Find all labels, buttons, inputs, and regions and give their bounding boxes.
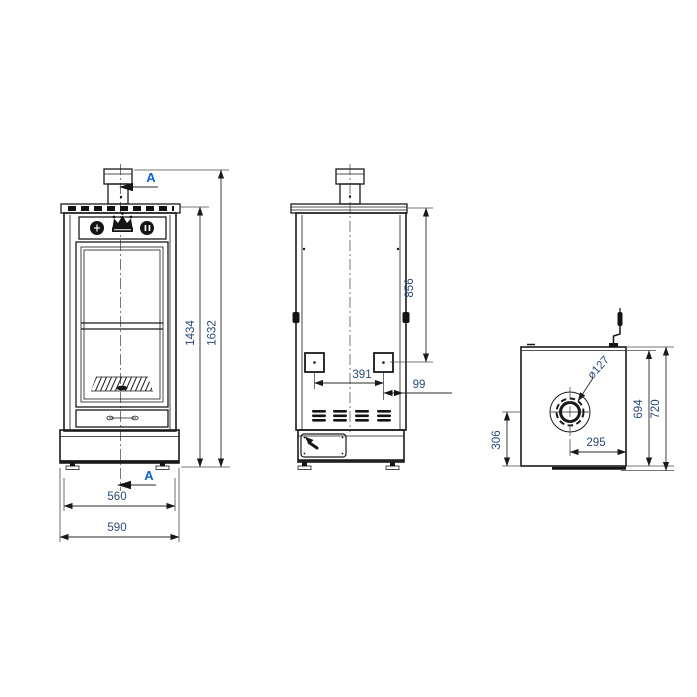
top-dimensions: ø127 295 306 694 720 [491, 347, 674, 471]
side-clip-right [403, 312, 410, 323]
right-knob-icon [140, 221, 154, 235]
dim-391: 391 [352, 369, 371, 381]
dim-694: 694 [633, 399, 645, 419]
section-label-top: A [146, 170, 156, 185]
side-foot-left [298, 463, 311, 470]
dim-height-1434: 1434 [185, 320, 197, 346]
side-view: 856 391 99 [291, 164, 452, 470]
air-port-right [374, 353, 393, 372]
flue-opening [550, 387, 590, 456]
side-base [298, 430, 404, 470]
grate-icon [90, 376, 157, 392]
dim-720: 720 [650, 399, 662, 418]
air-port-left [305, 353, 324, 372]
top-view: ø127 295 306 694 720 [491, 308, 674, 471]
side-foot-right [386, 463, 399, 470]
dim-height-1632: 1632 [207, 320, 219, 346]
dim-width-590: 590 [107, 522, 126, 534]
dim-306: 306 [491, 430, 503, 449]
front-door-window [76, 242, 168, 407]
dim-width-560: 560 [107, 491, 126, 503]
dim-99: 99 [413, 379, 426, 391]
side-base-panel [301, 434, 346, 457]
stove-dimension-drawing: A A 1434 1632 560 590 [0, 0, 697, 697]
section-marker-bottom: A [117, 468, 156, 489]
damper-lever-icon [609, 308, 623, 347]
front-ash-drawer [76, 410, 168, 427]
dim-856: 856 [404, 278, 416, 297]
technical-drawing-page: A A 1434 1632 560 590 [0, 0, 697, 697]
side-clip-left [293, 312, 300, 323]
side-top-plate [291, 204, 407, 213]
section-marker-top: A [119, 170, 158, 191]
front-view: A A 1434 1632 560 590 [60, 164, 230, 542]
left-knob-icon [90, 221, 104, 235]
section-label-bottom: A [144, 468, 154, 483]
brand-crown-icon [112, 212, 133, 232]
front-control-panel [79, 212, 166, 239]
side-body [293, 213, 410, 430]
front-base [60, 430, 179, 470]
side-vent-grille [312, 410, 391, 422]
dim-flue-diameter: ø127 [586, 354, 612, 382]
dim-295: 295 [586, 437, 605, 449]
base-lever-icon [305, 437, 318, 449]
